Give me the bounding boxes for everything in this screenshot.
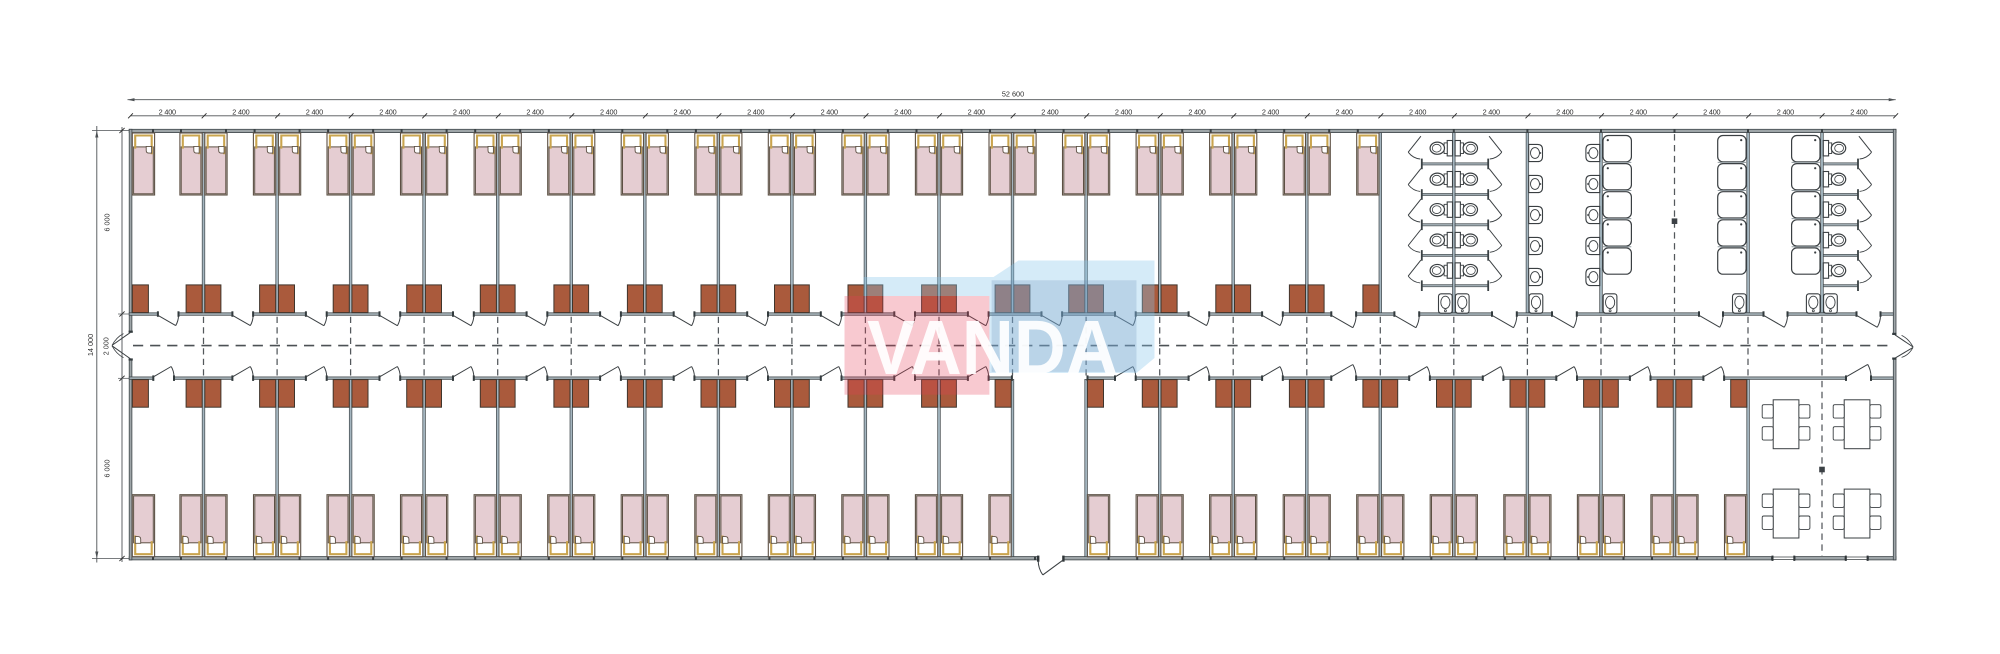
svg-text:2 000: 2 000 xyxy=(102,337,111,355)
svg-text:2 400: 2 400 xyxy=(747,107,764,116)
svg-text:2 400: 2 400 xyxy=(673,107,690,116)
svg-text:2 400: 2 400 xyxy=(600,107,617,116)
svg-text:2 400: 2 400 xyxy=(1483,107,1500,116)
svg-text:2 400: 2 400 xyxy=(1335,107,1352,116)
svg-text:2 400: 2 400 xyxy=(1703,107,1720,116)
svg-text:14 000: 14 000 xyxy=(86,334,95,356)
svg-text:2 400: 2 400 xyxy=(1850,107,1867,116)
svg-text:6 000: 6 000 xyxy=(103,214,112,232)
svg-text:2 400: 2 400 xyxy=(1630,107,1647,116)
svg-text:2 400: 2 400 xyxy=(1115,107,1132,116)
svg-text:2 400: 2 400 xyxy=(1409,107,1426,116)
svg-text:2 400: 2 400 xyxy=(821,107,838,116)
svg-text:2 400: 2 400 xyxy=(1777,107,1794,116)
svg-text:2 400: 2 400 xyxy=(159,107,176,116)
svg-text:2 400: 2 400 xyxy=(453,107,470,116)
svg-text:2 400: 2 400 xyxy=(1556,107,1573,116)
svg-text:2 400: 2 400 xyxy=(1041,107,1058,116)
svg-text:6 000: 6 000 xyxy=(103,460,112,478)
svg-text:2 400: 2 400 xyxy=(526,107,543,116)
svg-text:VANDA: VANDA xyxy=(867,305,1118,391)
svg-text:2 400: 2 400 xyxy=(968,107,985,116)
svg-text:2 400: 2 400 xyxy=(1188,107,1205,116)
svg-text:2 400: 2 400 xyxy=(306,107,323,116)
svg-text:2 400: 2 400 xyxy=(1262,107,1279,116)
svg-text:2 400: 2 400 xyxy=(894,107,911,116)
svg-text:2 400: 2 400 xyxy=(232,107,249,116)
svg-text:2 400: 2 400 xyxy=(379,107,396,116)
svg-text:52 600: 52 600 xyxy=(1002,89,1024,98)
